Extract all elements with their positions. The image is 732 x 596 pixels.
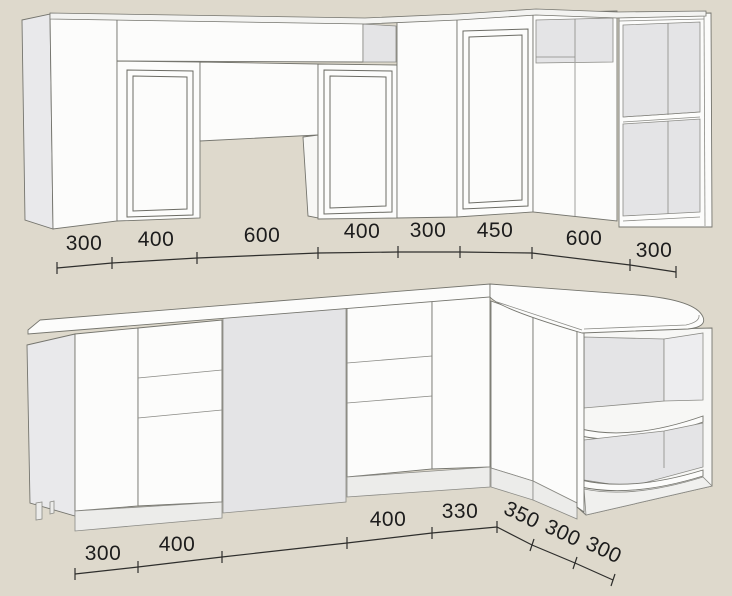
base-left-leg-front [36, 502, 42, 520]
dim-label-lower-0: 300 [85, 542, 122, 565]
dim-label-upper-2: 600 [244, 224, 281, 247]
dim-label-upper-5: 450 [477, 219, 514, 242]
base-appliance-gap-panel [223, 308, 346, 513]
base-drawer-unit-400-right [347, 299, 432, 477]
base-end-shelf-unit-300 [577, 328, 712, 515]
base-door-300 [75, 328, 138, 511]
dim-label-upper-7: 300 [636, 239, 673, 262]
upper-end-unit-gray-top [623, 22, 700, 117]
kitchen-elevation-svg: 300 400 600 400 300 450 600 300 [0, 0, 732, 596]
upper-door-300 [50, 14, 117, 229]
kitchen-drawing-canvas: 300 400 600 400 300 450 600 300 [0, 0, 732, 596]
upper-hood-box-600 [200, 62, 318, 141]
upper-cabinet-600-gray-top [536, 18, 613, 63]
dim-label-upper-6: 600 [566, 227, 603, 250]
end-unit-front-stile [577, 331, 584, 512]
base-corner-face-350 [491, 301, 533, 481]
dim-label-lower-3: 330 [442, 500, 479, 523]
base-corner-door-300 [533, 316, 577, 503]
upper-cabinet-row [22, 9, 712, 229]
end-unit-side-panel-upper [664, 333, 703, 401]
base-cabinet-row [27, 284, 712, 531]
base-door-330 [432, 296, 490, 469]
dim-label-upper-4: 300 [410, 219, 447, 242]
base-drawer-unit-400-left [138, 320, 222, 506]
dim-label-lower-1: 400 [159, 533, 196, 556]
upper-left-side-panel [22, 14, 53, 229]
base-left-leg-back [50, 501, 54, 514]
base-left-side-panel [27, 334, 75, 516]
dim-label-upper-3: 400 [344, 220, 381, 243]
upper-cabinet-400-left [117, 61, 200, 221]
dim-label-lower-2: 400 [370, 508, 407, 531]
end-unit-back-panel-upper [584, 337, 664, 408]
upper-cabinet-300-plain [397, 17, 457, 218]
upper-top-strip [117, 18, 363, 62]
upper-end-unit-gray-bottom [623, 119, 700, 216]
dim-label-upper-0: 300 [66, 232, 103, 255]
dim-label-upper-1: 400 [138, 228, 175, 251]
upper-strip-gray-panel [363, 24, 396, 62]
